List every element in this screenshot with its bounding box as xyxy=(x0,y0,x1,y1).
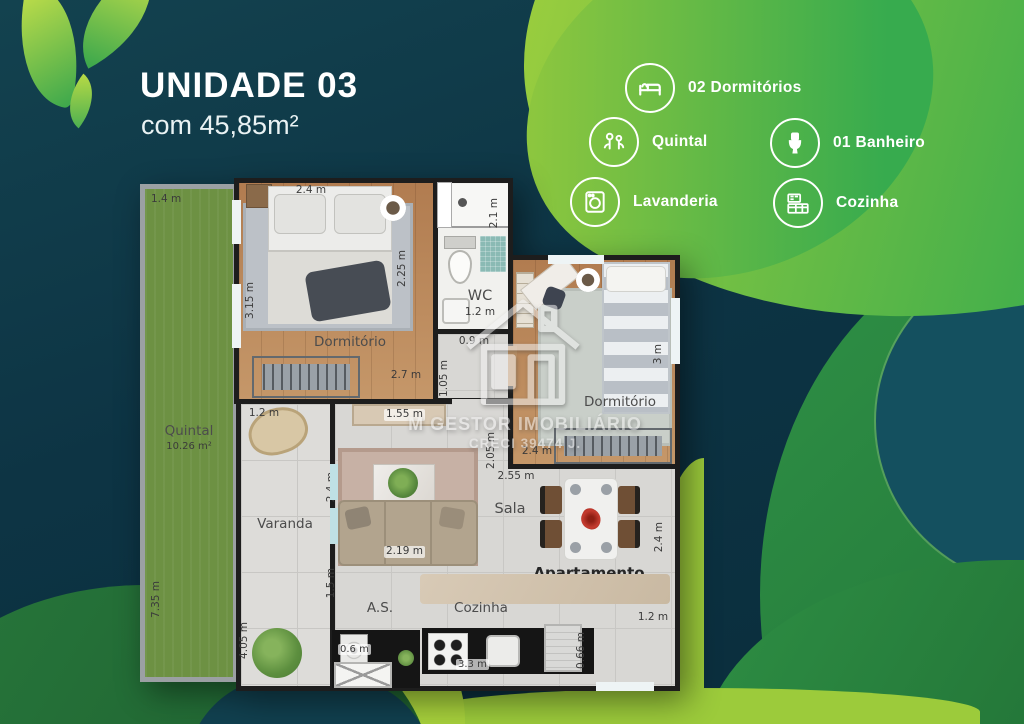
dim-label: 0.6 m xyxy=(338,644,371,655)
wardrobe xyxy=(252,356,360,398)
plate xyxy=(570,484,581,495)
room-label-cozinha: Cozinha xyxy=(436,600,526,616)
bed-icon xyxy=(625,63,675,113)
dim-label: 2.7 m xyxy=(384,370,428,382)
dining-chair xyxy=(540,520,562,548)
wc-cabinet xyxy=(437,182,452,228)
unit-subtitle: com 45,85m² xyxy=(141,110,299,141)
dim-label: 3.15 m xyxy=(245,282,257,319)
sofa-pillow xyxy=(438,506,465,530)
dim-label: 1.4 m xyxy=(151,194,181,206)
room-label-varanda: Varanda xyxy=(238,516,332,532)
feature-cozinha: Cozinha xyxy=(773,178,898,228)
sliding-door xyxy=(330,508,338,544)
feature-label: 02 Dormitórios xyxy=(688,79,802,97)
feature-label: Quintal xyxy=(652,133,708,151)
door-opening xyxy=(548,255,604,264)
door-opening xyxy=(596,682,654,691)
dim-label: 2.19 m xyxy=(384,546,425,558)
pillow xyxy=(274,194,326,234)
window xyxy=(671,298,680,364)
area-label: 10.26 m² xyxy=(145,441,233,452)
feature-label: 01 Banheiro xyxy=(833,134,925,152)
kitchen-sink xyxy=(486,635,520,667)
dim-label: 3.3 m xyxy=(456,659,489,670)
room-label-as: A.S. xyxy=(352,600,408,616)
plant xyxy=(398,650,414,666)
dim-label: 1.2 m xyxy=(630,612,676,624)
dining-chair xyxy=(618,486,640,514)
bath-mat xyxy=(480,236,506,272)
dim-label: 1.5 m xyxy=(326,568,338,598)
window xyxy=(232,200,241,244)
dim-label: 1.05 m xyxy=(439,360,451,397)
room-quintal: 1.4 m Quintal 10.26 m² 7.35 m xyxy=(140,184,238,682)
toilet-icon xyxy=(770,118,820,168)
shower-head xyxy=(458,198,467,207)
table-plant xyxy=(388,468,418,498)
dining-chair xyxy=(618,520,640,548)
feature-banheiro: 01 Banheiro xyxy=(770,118,925,168)
room-label-sala: Sala xyxy=(482,501,538,517)
dim-label: 2.4 m xyxy=(654,522,666,552)
room-label-quintal: Quintal xyxy=(145,423,233,439)
cabinet-icon xyxy=(773,178,823,228)
plate xyxy=(570,542,581,553)
feature-label: Cozinha xyxy=(836,194,898,212)
watermark-brand: M GESTOR IMOBILIÁRIO xyxy=(405,414,645,435)
dim-label: 3 m xyxy=(653,344,665,364)
dining-chair xyxy=(540,486,562,514)
dim-label: 2.55 m xyxy=(488,471,544,483)
plate xyxy=(601,542,612,553)
dim-label: 4.05 m xyxy=(239,622,251,659)
room-label-dormitorio-1: Dormitório xyxy=(280,334,420,350)
dim-label: 2.4 m xyxy=(286,185,336,197)
watermark-creci: CRECI 39474 J. xyxy=(430,436,620,451)
pillow xyxy=(334,194,386,234)
watermark-house-icon xyxy=(458,292,588,410)
plant xyxy=(252,628,302,678)
feature-quintal: Quintal xyxy=(589,117,708,167)
sliding-door xyxy=(330,464,338,500)
dim-label: 1.2 m xyxy=(242,408,286,420)
ceiling-lamp xyxy=(380,195,406,221)
dim-label: 2.1 m xyxy=(489,198,501,228)
toilet-tank xyxy=(444,236,476,249)
unit-title: UNIDADE 03 xyxy=(140,66,358,106)
dim-label: 2.25 m xyxy=(397,250,409,287)
folding-table xyxy=(334,662,392,688)
dim-label: 0.66 m xyxy=(576,632,588,669)
feature-bedrooms: 02 Dormitórios xyxy=(625,63,802,113)
plate xyxy=(601,484,612,495)
dim-label: 7.35 m xyxy=(151,581,163,618)
ceiling-lamp xyxy=(576,268,600,292)
window xyxy=(232,284,241,348)
pillow xyxy=(606,266,666,292)
flyer-canvas: UNIDADE 03 com 45,85m² 02 Dormitórios Qu… xyxy=(0,0,1024,724)
flowers-icon xyxy=(589,117,639,167)
